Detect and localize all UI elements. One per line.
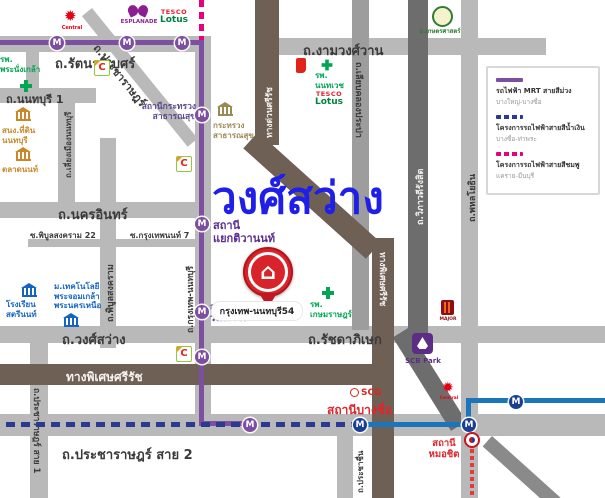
road-label-soi-phibun22: ซ.พิบูลสงคราม 22	[30, 229, 96, 242]
big-c-icon-2: C	[176, 156, 192, 172]
mrt-purple-line-vertical	[199, 40, 204, 425]
central-ladprao-icon	[442, 381, 454, 395]
tesco-lotus-ngamwongwan: TESCO Lotus	[311, 91, 347, 107]
rail-line-legend: รถไฟฟ้า MRT สายสีม่วง บางใหญ่-บางซื่อ โค…	[486, 66, 600, 195]
road-prachachuen	[337, 436, 353, 498]
road-label-ngamwongwan: ถ.งามวงศ์วาน	[303, 40, 383, 61]
red-line-dotted	[470, 449, 474, 498]
station-label-mo-chit: สถานี หมอชิต	[424, 438, 464, 460]
central-rattanathibet-icon	[64, 9, 77, 24]
station-label-bang-sue: สถานีบางซื่อ	[327, 403, 392, 417]
big-c-icon-1: C	[94, 60, 110, 76]
road-label-nonthaburi1: ถ.นนทบุรี 1	[6, 90, 64, 108]
mrt-station-marker: M	[120, 36, 134, 50]
mrt-station-marker-wong-sawang: M	[195, 305, 209, 319]
road-pracharat-diagonal	[82, 8, 198, 147]
kmutnb-label: ม.เทคโนโลยี พระจอมเกล้า พระนครเหนือ	[54, 282, 101, 311]
health-ministry-building-label: กระทรวง สาธารณสุข	[213, 121, 254, 140]
legend-item-pink-line: โครงการรถไฟฟ้าสายสีชมพู แคราย-มีนบุรี	[496, 152, 590, 181]
srirat-expressway-horizontal	[0, 364, 380, 385]
location-pin	[243, 247, 293, 297]
central-ladprao-label: Central	[434, 396, 464, 401]
health-ministry-building-icon	[218, 107, 233, 116]
legend-subtitle: บางซื่อ-ท่าพระ	[496, 134, 590, 144]
phra-nangklao-hospital-label: รพ. พระนั่งเกล้า	[0, 55, 40, 74]
blue-line-swatch-icon	[496, 115, 523, 119]
big-c-icon-3: C	[176, 346, 192, 362]
mrt-station-marker: M	[50, 36, 64, 50]
kmutnb-icon	[64, 318, 79, 327]
road-label-wong-sawang: ถ.วงศ์สว่าง	[62, 329, 126, 350]
esplanade-icon	[127, 5, 149, 17]
land-office-building-icon	[16, 112, 31, 121]
legend-title: รถไฟฟ้า MRT สายสีม่วง	[496, 86, 590, 97]
road-bottom-right-diagonal	[483, 436, 561, 498]
kasetsart-university-label: ม.เกษตรศาสตร์	[408, 26, 472, 36]
land-office-label: สนง.ที่ดิน นนทบุรี	[2, 126, 35, 145]
phra-nangklao-hospital-cross-icon	[20, 80, 32, 92]
legend-subtitle: บางใหญ่-บางซื่อ	[496, 97, 590, 107]
kasemrad-hospital-cross-icon	[322, 287, 334, 299]
bts-mo-chit-icon	[464, 432, 480, 448]
blue-line-solid-h2	[466, 398, 605, 403]
pink-line-project	[199, 0, 204, 40]
talad-non-label: ตลาดนนท์	[2, 165, 38, 175]
mrt-station-marker: M	[195, 350, 209, 364]
scb-park-label: SCB Park	[404, 357, 442, 365]
pink-line-swatch-icon	[496, 152, 523, 156]
road-label-krungthep-nonthaburi: ถ.กรุงเทพ-นนทบุรี	[183, 266, 197, 333]
mrt-station-marker: M	[462, 418, 476, 432]
blue-line-project-dashed	[6, 422, 356, 427]
road-label-pracharat-sai2: ถ.ประชาราษฎร์ สาย 2	[62, 444, 193, 465]
road-label-phahonyothin: ถ.พหลโยธิน	[465, 174, 479, 222]
legend-item-purple-line: รถไฟฟ้า MRT สายสีม่วง บางใหญ่-บางซื่อ	[496, 78, 590, 107]
road-label-srirat-expressway: ทางพิเศษศรีรัช	[66, 368, 143, 387]
kasemrad-hospital-label: รพ. เกษมราษฎร์	[310, 300, 352, 319]
station-label-yaek-tiwanon: สถานี แยกติวานนท์	[213, 220, 275, 246]
kasetsart-university-icon	[432, 6, 453, 27]
blue-line-solid-h1	[357, 422, 469, 427]
scg-ring-icon	[350, 388, 359, 397]
road-label-liang-mueang: ถ.เลี่ยงเมืองนนทบุรี	[62, 112, 75, 178]
central-rattanathibet-label: Central	[57, 25, 87, 31]
legend-item-blue-line: โครงการรถไฟฟ้าสายสีน้ำเงิน บางซื่อ-ท่าพร…	[496, 115, 590, 144]
road-label-pracharat-sai1: ถ.ประชาราษฎร์ สาย 1	[30, 388, 44, 473]
mrt-station-marker: M	[175, 36, 189, 50]
house-icon	[245, 249, 291, 295]
mrt-purple-line-top	[0, 40, 203, 45]
road-label-ratchadaphisek: ถ.รัชดาภิเษก	[308, 329, 382, 350]
scb-park-icon	[412, 333, 433, 354]
legend-title: โครงการรถไฟฟ้าสายสีน้ำเงิน	[496, 123, 590, 134]
satri-non-school-label: โรงเรียน สตรีนนท์	[6, 300, 37, 319]
station-label-health-ministry: สถานีกระทรวง สาธารณสุข	[126, 102, 196, 122]
nonthavej-hospital-cross-icon	[322, 60, 333, 71]
mrt-station-marker: M	[509, 395, 523, 409]
tesco-lotus-rattanathibet: TESCO Lotus	[156, 9, 192, 25]
talad-non-market-icon	[16, 152, 31, 161]
road-label-vibhavadi: ถ.วิภาวดีรังสิต	[413, 169, 427, 225]
road-label-soi-krungthepnon7: ซ.กรุงเทพนนท์ 7	[130, 229, 189, 242]
mrt-station-marker-yaek-tiwanon: M	[195, 217, 209, 231]
legend-subtitle: แคราย-มีนบุรี	[496, 171, 590, 181]
purple-line-swatch-icon	[496, 78, 523, 82]
major-cineplex-label: MAJOR	[434, 317, 462, 322]
road-label-expressway-north: ทางด่วนศรีรัช	[262, 87, 276, 138]
road-label-liab-khlong-prapa: ถ.เลียบคลองประปา	[352, 62, 366, 138]
major-cineplex-icon	[441, 300, 454, 315]
scg-label: SCG	[350, 388, 381, 399]
mrt-station-marker-bang-sue: M	[353, 418, 367, 432]
satri-non-school-icon	[22, 288, 37, 297]
mrt-station-marker-tao-poon: M	[243, 418, 257, 432]
location-pin-label: กรุงเทพ-นนทบุรี54	[212, 302, 302, 320]
road-label-nakhon-in: ถ.นครอินทร์	[58, 204, 128, 225]
nonthavej-hospital-label: รพ. นนทเวช	[315, 71, 344, 90]
wong-sawang-area-map: ถ.รัตนาธิเบศร์ ถ.งามวงศ์วาน ถ.นนทบุรี 1 …	[0, 0, 605, 498]
mrt-station-marker-health-ministry: M	[195, 108, 209, 122]
road-label-prachachuen: ถ.ประชาชื่น	[354, 451, 367, 493]
the-mall-logo-icon	[296, 58, 306, 73]
legend-title: โครงการรถไฟฟ้าสายสีชมพู	[496, 160, 590, 171]
road-label-srirat-expressway-vertical: ทางพิเศษศรีรัช	[376, 252, 390, 306]
road-label-phibunsongkhram: ถ.พิบูลสงคราม	[103, 264, 117, 322]
